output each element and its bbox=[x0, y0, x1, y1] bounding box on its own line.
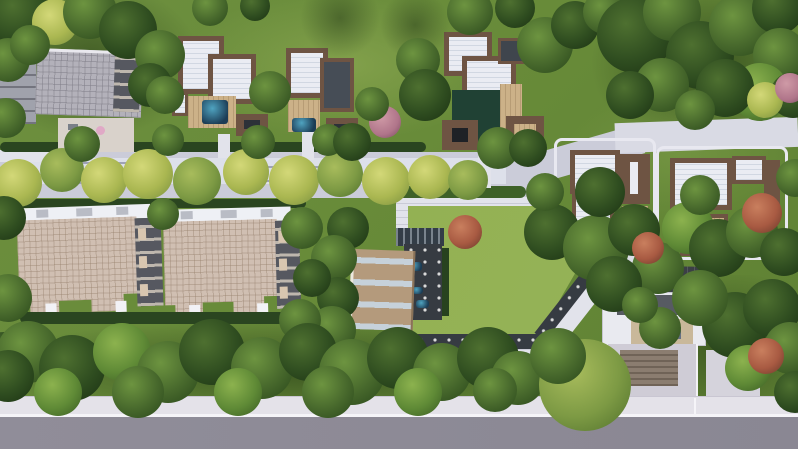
tree bbox=[281, 207, 323, 249]
tree-layer bbox=[0, 0, 798, 449]
tree bbox=[775, 73, 798, 103]
tree bbox=[293, 259, 331, 297]
tree bbox=[774, 371, 798, 413]
tree bbox=[152, 124, 184, 156]
tree bbox=[300, 0, 380, 58]
tree bbox=[0, 274, 32, 322]
tree bbox=[760, 228, 798, 276]
tree bbox=[748, 338, 784, 374]
tree bbox=[394, 368, 442, 416]
tree bbox=[214, 368, 262, 416]
tree bbox=[81, 157, 127, 203]
tree bbox=[146, 76, 184, 114]
tree bbox=[112, 366, 164, 418]
tree bbox=[473, 368, 517, 412]
tree bbox=[147, 198, 179, 230]
tree bbox=[408, 155, 452, 199]
tree bbox=[123, 149, 173, 199]
tree bbox=[776, 159, 798, 197]
tree bbox=[622, 287, 658, 323]
tree bbox=[64, 126, 100, 162]
tree bbox=[10, 25, 50, 65]
tree bbox=[362, 157, 410, 205]
tree bbox=[355, 87, 389, 121]
tree bbox=[632, 232, 664, 264]
tree bbox=[333, 123, 371, 161]
tree bbox=[680, 175, 720, 215]
tree bbox=[448, 215, 482, 249]
site-plan-render bbox=[0, 0, 798, 449]
tree bbox=[249, 71, 291, 113]
tree bbox=[173, 157, 221, 205]
tree bbox=[509, 129, 547, 167]
tree bbox=[530, 328, 586, 384]
tree bbox=[269, 155, 319, 205]
tree bbox=[526, 173, 564, 211]
tree bbox=[575, 167, 625, 217]
tree bbox=[742, 193, 782, 233]
tree bbox=[0, 98, 26, 138]
tree bbox=[34, 368, 82, 416]
tree bbox=[241, 125, 275, 159]
tree bbox=[448, 160, 488, 200]
tree bbox=[399, 69, 451, 121]
tree bbox=[192, 0, 228, 26]
tree bbox=[606, 71, 654, 119]
tree bbox=[240, 0, 270, 21]
tree bbox=[302, 366, 354, 418]
tree bbox=[675, 90, 715, 130]
tree bbox=[447, 0, 493, 35]
tree bbox=[672, 270, 728, 326]
